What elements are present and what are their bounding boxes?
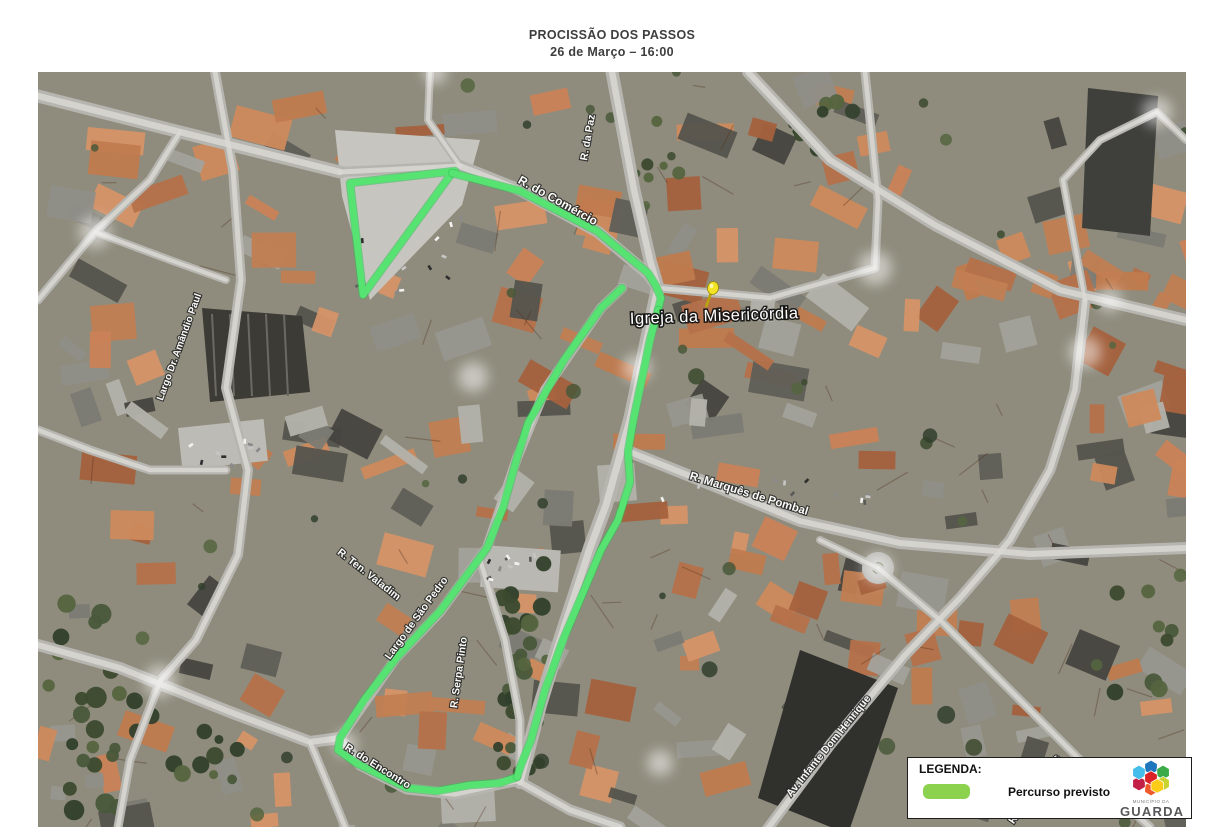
page-subtitle: 26 de Março – 16:00 <box>38 44 1186 61</box>
page: PROCISSÃO DOS PASSOS 26 de Março – 16:00… <box>0 0 1219 839</box>
legend-panel: LEGENDA: Percurso previsto MUNICÍPIO DA … <box>907 757 1192 819</box>
aerial-map[interactable]: R. do ComércioR. da PazR. Marquês de Pom… <box>38 72 1186 827</box>
legend-heading: LEGENDA: <box>919 762 982 776</box>
route-color-swatch <box>923 784 970 799</box>
guarda-logo-cubes-icon <box>1129 759 1173 797</box>
map-canvas: R. do ComércioR. da PazR. Marquês de Pom… <box>38 72 1186 827</box>
legend-item-label: Percurso previsto <box>1008 785 1110 799</box>
logo-large-text: GUARDA <box>1120 804 1182 819</box>
guarda-municipality-logo: MUNICÍPIO DA GUARDA <box>1120 759 1182 819</box>
legend-item: Percurso previsto <box>923 784 1110 799</box>
page-title: PROCISSÃO DOS PASSOS <box>38 27 1186 44</box>
title-block: PROCISSÃO DOS PASSOS 26 de Março – 16:00 <box>38 27 1186 61</box>
